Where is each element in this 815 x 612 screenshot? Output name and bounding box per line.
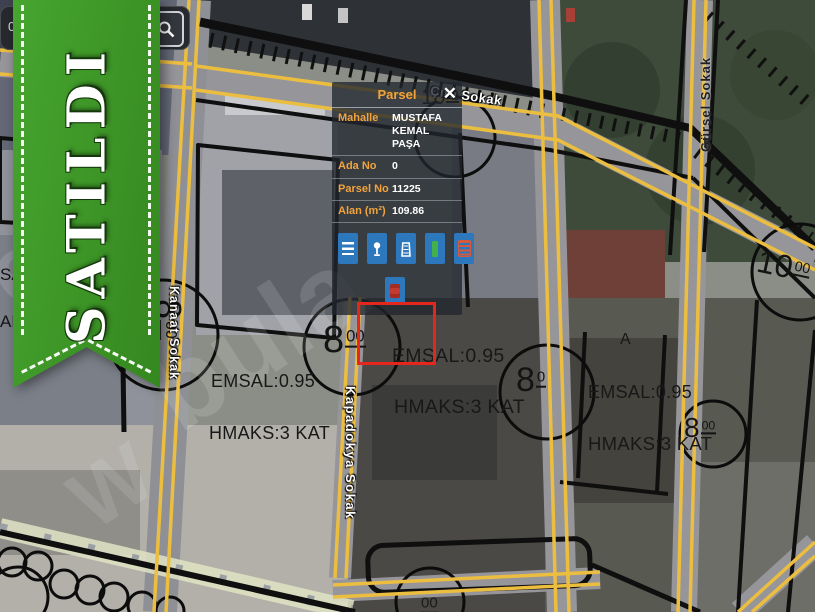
popup-row-alan: Alan (m²) 109.86 — [332, 201, 462, 223]
popup-toolbar — [338, 233, 474, 264]
close-icon[interactable]: ✕ — [443, 84, 457, 104]
delete-icon — [390, 284, 400, 298]
popup-header: Parsel ✕ — [332, 82, 462, 108]
dimension-label: 800 — [684, 414, 716, 442]
ribbon-dash-border — [21, 5, 24, 335]
popup-row-mahalle: Mahalle MUSTAFA KEMAL PAŞA — [332, 108, 462, 156]
sold-ribbon: SATILDI — [0, 0, 147, 388]
popup-row-parsel-no: Parsel No 11225 — [332, 179, 462, 201]
street-label-kapadokya-sokak: Kapadokya Sokak — [343, 386, 358, 520]
street-label-kanaat-sokak: Kanaat Sokak — [167, 286, 181, 380]
measure-icon — [432, 241, 438, 257]
field-value: MUSTAFA KEMAL PAŞA — [392, 112, 456, 151]
screenshot-stage: e bula W EMSAL:0.95 HMAKS:3 KAT EMSAL:0.… — [0, 0, 815, 612]
ribbon-dash-border — [88, 339, 152, 373]
zoning-label-emsal: EMSAL:0.95 — [588, 382, 692, 403]
levels-button[interactable] — [454, 233, 474, 264]
selected-parcel-highlight — [357, 302, 436, 365]
dimension-label: 00 — [419, 589, 439, 612]
zoning-label-emsal: EMSAL:0.95 — [211, 371, 315, 392]
ribbon-dash-border — [21, 339, 85, 373]
pin-button[interactable] — [367, 233, 387, 264]
field-value: 109.86 — [392, 205, 456, 218]
building-button[interactable] — [396, 233, 416, 264]
zoning-label-hmaks: HMAKS:3 KAT — [209, 423, 330, 444]
field-value: 11225 — [392, 183, 456, 196]
menu-button[interactable] — [338, 233, 358, 264]
block-label: A — [620, 331, 631, 349]
sold-label: SATILDI — [56, 44, 117, 344]
building-icon — [399, 241, 413, 257]
street-label-gursel-sokak: Gürsel Sokak — [698, 57, 713, 152]
measure-button[interactable] — [425, 233, 445, 264]
dimension-label: 80 — [516, 363, 546, 397]
battery-icon — [458, 240, 471, 257]
delete-button[interactable] — [385, 277, 405, 304]
pin-icon — [371, 241, 383, 257]
field-label: Alan (m²) — [338, 205, 392, 218]
popup-row-ada-no: Ada No 0 — [332, 156, 462, 178]
parcel-info-popup: Parsel ✕ Mahalle MUSTAFA KEMAL PAŞA Ada … — [332, 82, 462, 315]
ribbon-dash-border — [148, 5, 151, 335]
field-label: Mahalle — [338, 112, 392, 151]
field-label: Parsel No — [338, 183, 392, 196]
field-value: 0 — [392, 160, 456, 173]
menu-icon — [342, 242, 354, 255]
field-label: Ada No — [338, 160, 392, 173]
zoning-label-hmaks: HMAKS:3 KAT — [394, 396, 525, 419]
ribbon-body: SATILDI — [13, 0, 160, 388]
